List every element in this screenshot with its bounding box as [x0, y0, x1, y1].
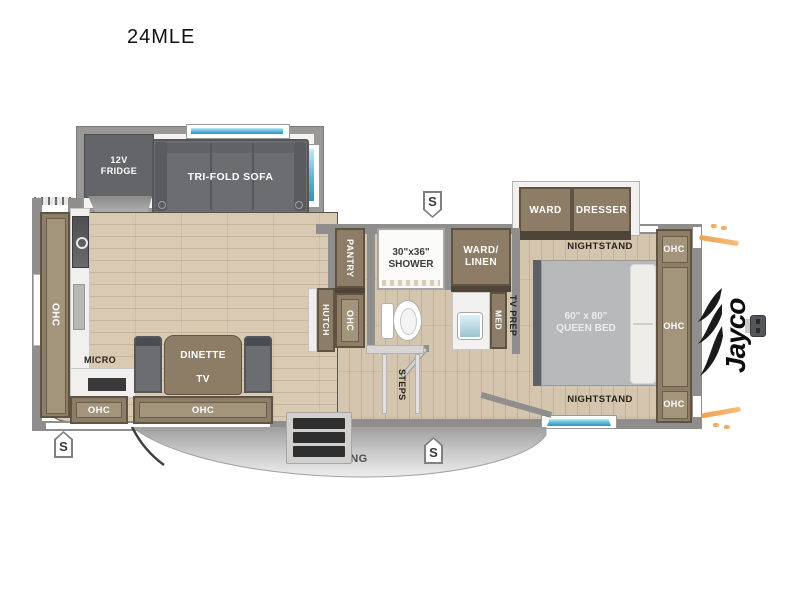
vanity-sink: [458, 313, 482, 339]
speaker-letter: S: [54, 439, 73, 454]
slideout-top-window: [186, 124, 290, 139]
microwave: [88, 378, 126, 391]
tv-prep-label: TV PREP: [508, 295, 518, 336]
toilet-bowl: [393, 300, 422, 341]
bedroom-window: [541, 415, 617, 429]
clearance-swoosh: [701, 407, 741, 419]
steps-rail: [415, 354, 420, 414]
queen-bed: 60" x 80" QUEEN BED: [541, 260, 657, 386]
brand-name: Jayco: [720, 299, 752, 373]
ward-linen: WARD/ LINEN: [451, 228, 511, 286]
tv-prep-label-wrap: TV PREP: [506, 284, 520, 348]
pantry-label: PANTRY: [345, 239, 355, 277]
steps-label-wrap: STEPS: [392, 358, 412, 412]
shower: 30"x36" SHOWER: [377, 228, 445, 290]
speaker-letter: S: [424, 445, 443, 460]
ohc-label: OHC: [192, 405, 214, 416]
kitchen-ohc-cabinet: OHC: [40, 212, 70, 418]
floorplan-title: 24MLE: [127, 26, 195, 49]
ohc-cabinet: OHC: [133, 396, 273, 424]
dinette-table: DINETTE TV: [164, 335, 242, 395]
burner: [76, 237, 88, 249]
ohc-label: OHC: [663, 244, 684, 254]
fridge: 12V FRIDGE: [84, 134, 154, 198]
tv-label: TV: [165, 374, 241, 385]
vanity: [452, 292, 490, 350]
speaker-marker: S: [423, 191, 442, 218]
ohc-label: OHC: [50, 303, 61, 326]
dresser: DRESSER: [572, 187, 631, 234]
clearance-dot: [711, 224, 717, 228]
fridge-label: 12V FRIDGE: [101, 155, 137, 178]
speaker-marker: S: [424, 437, 443, 464]
sofa-label: TRI-FOLD SOFA: [188, 171, 274, 183]
dinette-bench: [134, 336, 162, 393]
ohc-label: OHC: [345, 310, 355, 331]
dresser-label: DRESSER: [576, 205, 627, 216]
ward-linen-label: WARD/ LINEN: [463, 245, 498, 270]
nightstand-label: NIGHTSTAND: [552, 241, 648, 252]
ohc-cabinet: OHC: [70, 396, 128, 424]
ohc-label: OHC: [663, 399, 684, 409]
nightstand-label: NIGHTSTAND: [552, 394, 648, 405]
clearance-swoosh: [699, 235, 739, 246]
med-cabinet: MED: [490, 292, 507, 349]
steps-label: STEPS: [397, 369, 407, 401]
shower-label: 30"x36" SHOWER: [389, 247, 434, 272]
pillows: [630, 264, 656, 384]
dinette-label: DINETTE: [165, 350, 241, 361]
right-wall-hatch: [693, 396, 701, 417]
hitch-coupler: [750, 315, 766, 337]
queen-bed-label: 60" x 80" QUEEN BED: [556, 311, 615, 336]
speaker-letter: S: [423, 194, 442, 209]
bed-footboard: [533, 260, 541, 386]
shower-step: [382, 280, 440, 286]
hutch-counter: [308, 288, 317, 352]
clearance-dot: [721, 226, 727, 230]
speaker-marker: S: [54, 431, 73, 458]
pantry-ohc: OHC: [335, 293, 365, 348]
floorplan-canvas: 24MLE 12V FRIDGE TRI-FOLD SOFA: [0, 0, 800, 600]
kitchen-sink: [73, 284, 85, 330]
pantry: PANTRY: [335, 228, 365, 288]
entry-steps: [286, 412, 352, 464]
wardrobe: WARD: [519, 187, 572, 234]
clearance-dot: [713, 423, 719, 427]
hutch-label: HUTCH: [321, 304, 331, 336]
bedroom-slideout-front: [519, 231, 631, 240]
ward-label: WARD: [529, 205, 561, 216]
tri-fold-sofa: TRI-FOLD SOFA: [152, 139, 309, 214]
hutch: HUTCH: [317, 288, 335, 352]
steps-platform: [366, 345, 424, 354]
ohc-label: OHC: [88, 405, 110, 416]
dinette-bench: [244, 336, 272, 393]
steps-rail: [382, 354, 387, 414]
clearance-dot: [724, 425, 730, 429]
med-label: MED: [494, 310, 504, 330]
ohc-label: OHC: [663, 321, 684, 331]
bedroom-ohc-column: OHC OHC OHC: [656, 229, 692, 423]
range-cooktop: [72, 216, 89, 268]
bath-wall: [367, 228, 375, 350]
micro-label: MICRO: [84, 355, 116, 365]
